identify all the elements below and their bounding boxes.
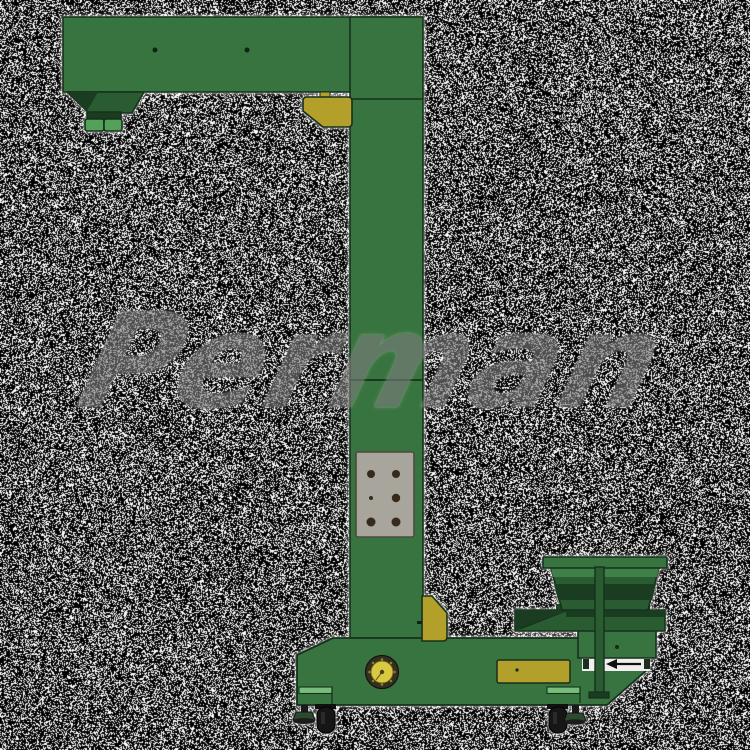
left-wheel-highlight <box>321 712 325 724</box>
panel-hole-icon <box>369 496 373 500</box>
feeder-support-pad <box>589 692 609 698</box>
panel-hole-icon <box>392 470 400 478</box>
discharge-outlet-right <box>104 119 122 131</box>
panel-hole-icon <box>367 470 375 478</box>
caster-wheel-left <box>317 707 335 733</box>
panel-hole-icon <box>367 518 376 527</box>
left-step-strip <box>299 687 332 694</box>
beam-bolt-icon <box>153 48 158 53</box>
bin-band-dark <box>554 584 656 600</box>
band-clamp <box>644 659 650 669</box>
beam-bolt-icon <box>245 48 250 53</box>
corner-gusset-top <box>303 97 352 127</box>
discharge-outlet-left <box>85 119 104 131</box>
bin-band-light <box>551 568 659 577</box>
undercarriage <box>293 704 586 733</box>
vibratory-feeder-box <box>578 628 656 658</box>
access-panel <box>356 452 414 537</box>
feeder-support-rod <box>595 567 604 694</box>
right-foot-stem <box>572 705 579 713</box>
base-yellow-plate <box>497 660 570 683</box>
pan-inner-shadow <box>566 611 664 617</box>
feed-bin-rim <box>543 557 667 568</box>
product-image: Perman <box>0 0 750 750</box>
watermark-text: Perman <box>65 296 703 436</box>
right-wheel-highlight <box>553 712 557 724</box>
band-clamp <box>583 659 589 669</box>
corner-gusset-bottom <box>422 596 447 641</box>
column-foot-mark <box>417 621 422 624</box>
feeder-bolt-icon <box>615 645 619 649</box>
panel-hole-icon <box>392 518 401 527</box>
panel-hole-icon <box>392 494 400 502</box>
drive-pulley <box>366 656 399 689</box>
left-foot-pad <box>293 718 315 724</box>
base-bolt-icon <box>515 668 518 671</box>
right-step-strip <box>547 687 580 694</box>
right-foot-pad <box>565 719 585 725</box>
